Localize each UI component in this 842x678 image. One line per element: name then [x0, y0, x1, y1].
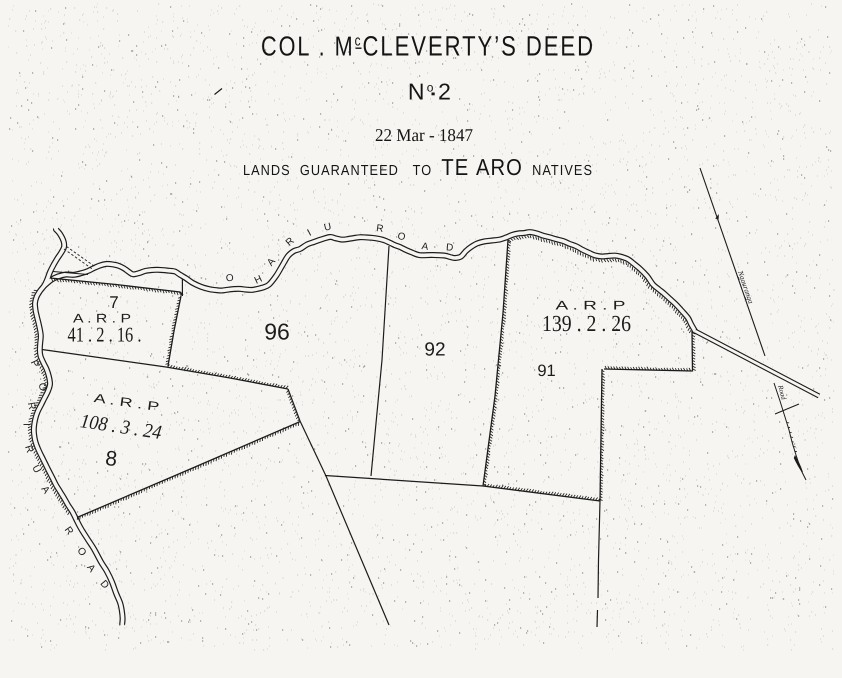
svg-text:7: 7 [109, 293, 118, 312]
svg-text:41 . 2 . 16 .: 41 . 2 . 16 . [68, 323, 142, 347]
svg-text:139 . 2 . 26: 139 . 2 . 26 [542, 311, 631, 336]
svg-text:22 Mar - 1847: 22 Mar - 1847 [375, 125, 473, 145]
svg-text:8: 8 [104, 447, 118, 471]
svg-text:96: 96 [264, 319, 290, 345]
svg-text:COL . McCLEVERTY’S DEED: COL . McCLEVERTY’S DEED [261, 31, 595, 62]
svg-text:O: O [225, 273, 234, 285]
svg-text:I: I [21, 423, 32, 426]
svg-text:D: D [446, 242, 454, 253]
svg-text:92: 92 [424, 340, 445, 361]
svg-text:91: 91 [537, 362, 555, 380]
svg-text:R: R [376, 223, 385, 235]
